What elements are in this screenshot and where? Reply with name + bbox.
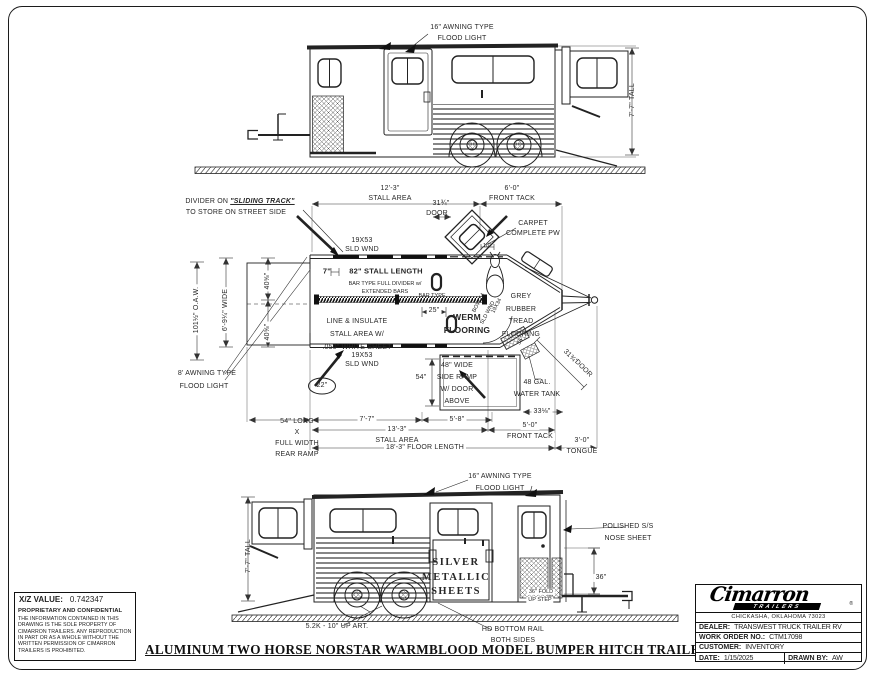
rear-ramp-label-4: REAR RAMP — [275, 451, 318, 459]
xz-value-label: X/Z VALUE: — [19, 595, 63, 604]
bottom-height-dim: 7'-7" TALL — [245, 539, 253, 573]
title-block: Cimarron TRAILERS ® CHICKASHA, OKLAHOMA … — [695, 584, 862, 662]
divider-note-line2: TO STORE ON STREET SIDE — [186, 209, 286, 217]
silver-sheet-label-3: SHEETS — [431, 586, 481, 598]
front-tack-bottom-dim: 5'-0" — [521, 422, 540, 430]
brand-address: CHICKASHA, OKLAHOMA 73023 — [696, 613, 861, 623]
bottom-awning-label-2: FLOOD LIGHT — [476, 485, 525, 493]
door-top-label: DOOR — [426, 210, 448, 218]
tongue-label: TONGUE — [564, 448, 599, 456]
top-awning-label-2: FLOOD LIGHT — [438, 35, 487, 43]
work-order-label: WORK ORDER NO.: — [699, 634, 765, 641]
work-order-row: WORK ORDER NO.: CTM17098 — [696, 633, 861, 643]
floor-length-dim: 18'-3" FLOOR LENGTH — [384, 444, 466, 452]
insulate-label-2: STALL AREA W/ — [330, 331, 384, 339]
bottom-awning-label-1: 16" AWNING TYPE — [468, 473, 531, 481]
silver-sheet-label-1: SILVER — [432, 557, 479, 569]
door-top-dim: 31¾" — [433, 200, 450, 208]
awning8-label-1: 8' AWNING TYPE — [178, 370, 236, 378]
width-dim: 6'-9¼" WIDE — [222, 287, 230, 333]
drawn-by-cell: DRAWN BY: AW — [785, 653, 861, 664]
stall-area-top-dim: 12'-3" — [380, 185, 399, 193]
dealer-row: DEALER: TRANSWEST TRUCK TRAILER RV — [696, 623, 861, 633]
water-tank-label-2: WATER TANK — [514, 391, 560, 399]
date-label: DATE: — [699, 655, 720, 662]
rear-ramp-label-3: FULL WIDTH — [275, 440, 319, 448]
tie-dim: 25" — [427, 307, 442, 315]
fold-step-label-2: UP STEP — [526, 597, 553, 603]
xz-value-box: X/Z VALUE: 0.742347 — [14, 592, 136, 607]
front-tack-bottom-label: FRONT TACK — [505, 433, 555, 441]
customer-row: CUSTOMER: INVENTORY — [696, 643, 861, 653]
werm-label-2: FLOORING — [444, 326, 490, 336]
front-tack-top-dim: 6'-0" — [505, 185, 520, 193]
window-bottom-size: 19X53 — [351, 352, 372, 360]
grey-floor-1: GREY — [511, 293, 532, 301]
customer-value: INVENTORY — [745, 644, 784, 651]
nose-dim-18: 18" — [483, 243, 491, 249]
front-tack-top-label: FRONT TACK — [489, 195, 535, 203]
bottom-rail-label-1: HD BOTTOM RAIL — [482, 626, 544, 634]
silver-sheet-label-2: METALLIC — [422, 572, 490, 584]
awning8-label-2: FLOOD LIGHT — [180, 383, 229, 391]
stall-length-sub1: BAR TYPE FULL DIVIDER w/ — [349, 281, 422, 287]
stall-area-bottom-dim: 13'-3" — [385, 426, 408, 434]
side-ramp-label-3: W/ DOOR — [441, 386, 474, 394]
axle-note: 5.2K - 10" UP ART. — [306, 623, 369, 631]
side-ramp-label-1: 48" WIDE — [441, 362, 473, 370]
drawn-by-value: AW — [832, 655, 843, 662]
fold-step-label-1: 36" FOLD — [527, 589, 555, 595]
drawn-by-label: DRAWN BY: — [788, 655, 828, 662]
window-top-size: 19X53 — [351, 237, 372, 245]
divider-note-line1: DIVIDER ON"SLIDING TRACK" — [185, 198, 294, 206]
side-ramp-height-dim: 54" — [414, 374, 429, 382]
nose-sheet-label-1: POLISHED S/S — [602, 523, 653, 531]
rear-ramp-label-2: X — [295, 429, 300, 437]
brand-banner: TRAILERS — [733, 603, 821, 610]
xz-value: 0.742347 — [70, 595, 103, 604]
registered-mark: ® — [849, 601, 853, 607]
insulate-label-1: LINE & INSULATE — [327, 318, 388, 326]
sheet-title: ALUMINUM TWO HORSE NORSTAR WARMBLOOD MOD… — [145, 642, 690, 658]
werm-label-1: WERM — [453, 313, 481, 323]
cimarron-logo: Cimarron TRAILERS ® — [696, 585, 861, 613]
window-bottom-label: SLD WND — [345, 361, 379, 369]
date-cell: DATE: 1/15/2025 — [696, 653, 785, 664]
grey-floor-3: TREAD — [509, 318, 534, 326]
dim-22: 22" — [317, 382, 328, 390]
rear-ramp-label-1: 54" LONG — [280, 418, 314, 426]
confidential-box: PROPRIETARY AND CONFIDENTIAL THE INFORMA… — [14, 606, 136, 661]
grey-floor-2: RUBBER — [506, 306, 536, 314]
dim-5-8: 5'-8" — [448, 416, 467, 424]
oaw-dim: 101½" O.A.W. — [193, 285, 201, 336]
plan-view-drawing — [185, 190, 665, 470]
top-height-dim: 7'-7" TALL — [629, 83, 637, 117]
dim-33: 33⅛" — [532, 408, 553, 416]
bar-type-label: BAR TYPE — [418, 293, 445, 299]
side-ramp-label-2: SIDE RAMP — [437, 374, 477, 382]
dealer-label: DEALER: — [699, 624, 730, 631]
dealer-value: TRANSWEST TRUCK TRAILER RV — [734, 624, 841, 631]
stall-area-top-label: STALL AREA — [368, 195, 411, 203]
stall-length-dim: 82" STALL LENGTH — [349, 268, 423, 277]
brand-sub: TRAILERS — [752, 604, 801, 610]
stall-length-sub2: EXTENDED BARS — [362, 289, 408, 295]
tongue-dim: 3'-0" — [573, 437, 592, 445]
dim-7-7: 7'-7" — [358, 416, 377, 424]
water-tank-label-1: 48 GAL. — [523, 379, 550, 387]
side-ramp-label-4: ABOVE — [444, 398, 469, 406]
window-top-label: SLD WND — [345, 246, 379, 254]
top-view-drawing — [180, 18, 660, 178]
bottom-view-drawing — [230, 462, 680, 642]
date-drawn-row: DATE: 1/15/2025 DRAWN BY: AW — [696, 653, 861, 664]
insulate-label-3: .050" WHITE SHEET — [322, 344, 391, 352]
stall-width-dim-1: 40⅝" — [264, 271, 272, 292]
step-height-dim: 36" — [594, 574, 609, 582]
confidential-text: THE INFORMATION CONTAINED IN THIS DRAWIN… — [18, 616, 132, 654]
work-order-value: CTM17098 — [769, 634, 802, 641]
offset-dim: 7" — [323, 268, 331, 277]
confidential-title: PROPRIETARY AND CONFIDENTIAL — [18, 608, 132, 614]
nose-sheet-label-2: NOSE SHEET — [604, 535, 651, 543]
carpet-label-2: COMPLETE PW — [506, 230, 560, 238]
stall-width-dim-2: 40⅝" — [264, 322, 272, 343]
drawing-sheet: 16" AWNING TYPE FLOOD LIGHT 7'-7" TALL D… — [0, 0, 875, 676]
top-awning-label-1: 16" AWNING TYPE — [430, 24, 493, 32]
customer-label: CUSTOMER: — [699, 644, 741, 651]
date-value: 1/15/2025 — [724, 655, 753, 662]
carpet-label-1: CARPET — [518, 220, 548, 228]
